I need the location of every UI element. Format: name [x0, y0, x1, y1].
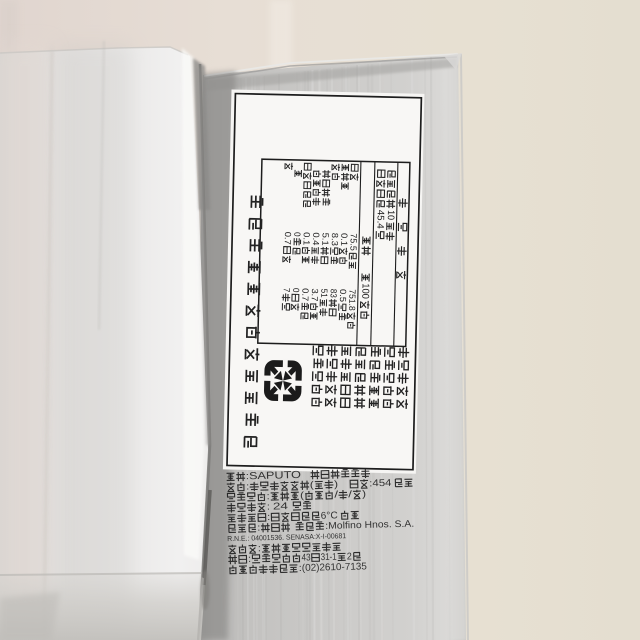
svg-text:): ): [362, 489, 366, 500]
svg-text::: :: [267, 512, 270, 523]
svg-text:SAPUTO: SAPUTO: [249, 470, 301, 482]
svg-text:(02)2610-7135: (02)2610-7135: [302, 561, 368, 574]
svg-text::: :: [248, 554, 251, 565]
svg-text:Molfino Hnos. S.A.: Molfino Hnos. S.A.: [328, 519, 414, 532]
svg-text::: :: [246, 481, 249, 492]
svg-text:454: 454: [372, 478, 392, 489]
svg-text:0.7: 0.7: [283, 232, 293, 245]
svg-text::: :: [258, 543, 261, 554]
svg-text::: :: [257, 523, 260, 534]
svg-text:45.4: 45.4: [374, 210, 385, 230]
svg-text:24: 24: [273, 501, 289, 512]
svg-text:100: 100: [359, 283, 370, 299]
svg-text:7: 7: [282, 288, 292, 293]
